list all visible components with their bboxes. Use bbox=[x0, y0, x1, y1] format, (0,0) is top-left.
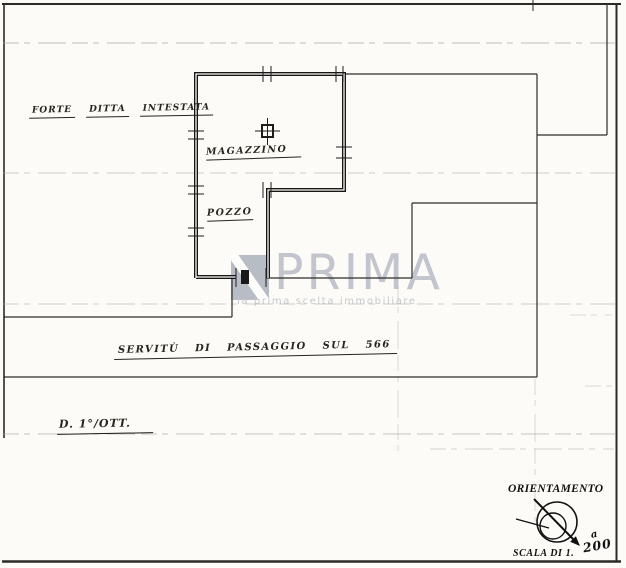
room-label-pozzo: POZZO bbox=[207, 206, 253, 222]
owner-note-word: FORTE bbox=[29, 105, 75, 119]
scale-value-handwritten: a 200 bbox=[580, 528, 613, 555]
column-marker bbox=[255, 118, 280, 145]
door-marker bbox=[236, 268, 266, 287]
orientation-title: ORIENTAMENTO bbox=[508, 483, 603, 495]
room-label-text: POZZO bbox=[207, 206, 253, 222]
page-border bbox=[2, 0, 621, 562]
owner-note-word: INTESTATA bbox=[140, 102, 214, 116]
orientation-compass-icon bbox=[516, 499, 580, 546]
floor-note: D. 1°/OTT. bbox=[57, 416, 153, 435]
owner-note-word: DITTA bbox=[86, 104, 129, 118]
scale-label: SCALA DI 1. bbox=[513, 548, 574, 559]
scanned-floor-plan-page: PRIMA la prima scelta immobiliare bbox=[0, 0, 626, 568]
